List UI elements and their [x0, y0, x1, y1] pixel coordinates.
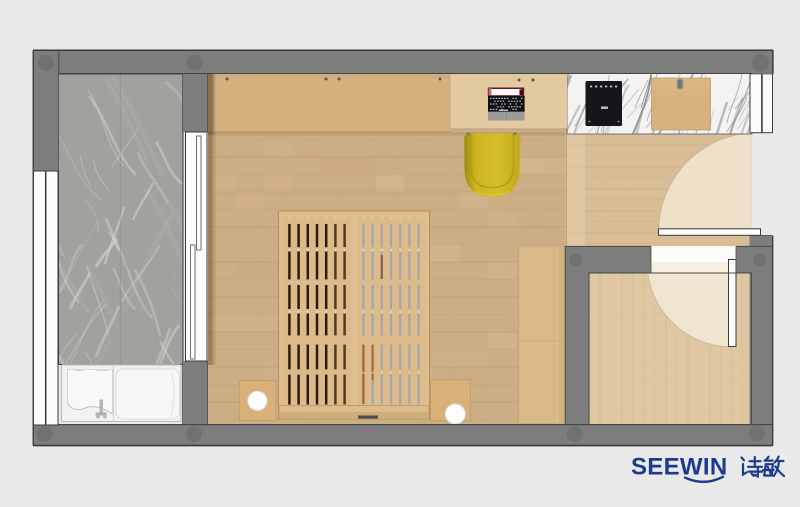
svg-text:SEEWIN: SEEWIN — [631, 454, 727, 481]
